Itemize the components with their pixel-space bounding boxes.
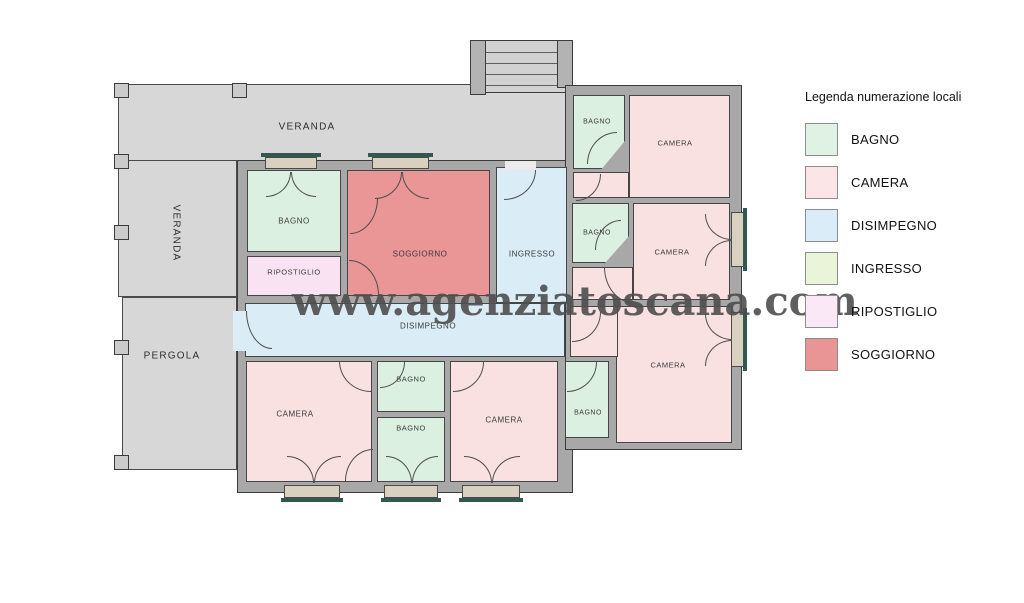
legend-swatch-bagno bbox=[805, 123, 838, 156]
window-frame-strip-3 bbox=[281, 498, 343, 502]
opening-ingresso-entry bbox=[505, 161, 536, 170]
staircase-sidewall-2 bbox=[557, 40, 573, 88]
staircase-sidewall-1 bbox=[470, 40, 486, 95]
staircase-step-3 bbox=[486, 74, 557, 75]
room-label-camera-2: CAMERA bbox=[654, 248, 689, 257]
room-label-ripostiglio: RIPOSTIGLIO bbox=[267, 268, 320, 277]
veranda-pillar-3 bbox=[114, 154, 129, 169]
room-label-bagno-m2: BAGNO bbox=[396, 424, 426, 433]
legend-label-bagno: BAGNO bbox=[851, 132, 899, 147]
legend-label-ripostiglio: RIPOSTIGLIO bbox=[851, 304, 937, 319]
legend-swatch-camera bbox=[805, 166, 838, 199]
sill-top-1 bbox=[265, 157, 317, 169]
outdoor-label-pergola-3: PERGOLA bbox=[144, 351, 201, 362]
staircase-step-1 bbox=[486, 52, 557, 53]
legend-label-disimpegno: DISIMPEGNO bbox=[851, 218, 937, 233]
room-label-bagno-br: BAGNO bbox=[574, 410, 602, 417]
sill-bottom-3 bbox=[462, 485, 520, 498]
window-frame-strip-5 bbox=[459, 498, 523, 502]
outdoor-area-veranda-top bbox=[118, 84, 568, 162]
outdoor-area-pergola bbox=[122, 297, 237, 470]
veranda-pillar-6 bbox=[114, 455, 129, 470]
room-label-camera-3: CAMERA bbox=[650, 361, 685, 370]
legend-row-ingresso: INGRESSO bbox=[805, 251, 961, 285]
window-frame-strip-6 bbox=[743, 208, 747, 271]
opening-pergola-door bbox=[233, 311, 246, 351]
staircase-step-2 bbox=[486, 63, 557, 64]
legend-items: BAGNOCAMERADISIMPEGNOINGRESSORIPOSTIGLIO… bbox=[805, 122, 961, 371]
window-frame-strip-1 bbox=[261, 153, 321, 157]
sill-top-2 bbox=[372, 157, 429, 169]
legend-row-disimpegno: DISIMPEGNO bbox=[805, 208, 961, 242]
legend-label-camera: CAMERA bbox=[851, 175, 908, 190]
legend-row-soggiorno: SOGGIORNO bbox=[805, 337, 961, 371]
room-label-bagno-1: BAGNO bbox=[278, 217, 309, 226]
veranda-pillar-4 bbox=[114, 225, 129, 240]
legend-row-camera: CAMERA bbox=[805, 165, 961, 199]
watermark-text: www.agenziatoscana.com bbox=[292, 278, 858, 325]
legend-panel: Legenda numerazione locali BAGNOCAMERADI… bbox=[805, 90, 961, 380]
room-label-ingresso: INGRESSO bbox=[509, 250, 555, 259]
window-frame-strip-2 bbox=[368, 153, 433, 157]
sill-bottom-1 bbox=[284, 485, 340, 498]
window-frame-strip-4 bbox=[381, 498, 441, 502]
veranda-pillar-5 bbox=[114, 340, 129, 355]
legend-title: Legenda numerazione locali bbox=[805, 90, 961, 104]
legend-label-ingresso: INGRESSO bbox=[851, 261, 922, 276]
legend-swatch-ripostiglio bbox=[805, 295, 838, 328]
sill-bottom-2 bbox=[384, 485, 438, 498]
legend-label-soggiorno: SOGGIORNO bbox=[851, 347, 935, 362]
legend-swatch-ingresso bbox=[805, 252, 838, 285]
room-label-camera-bc: CAMERA bbox=[485, 416, 522, 425]
floor-plan-page: BAGNORIPOSTIGLIOSOGGIORNOINGRESSOBAGNOCA… bbox=[0, 0, 1024, 603]
legend-swatch-soggiorno bbox=[805, 338, 838, 371]
legend-row-bagno: BAGNO bbox=[805, 122, 961, 156]
outdoor-label-veranda-2: VERANDA bbox=[171, 205, 182, 262]
legend-row-ripostiglio: RIPOSTIGLIO bbox=[805, 294, 961, 328]
legend-swatch-disimpegno bbox=[805, 209, 838, 242]
room-label-soggiorno: SOGGIORNO bbox=[393, 250, 448, 259]
veranda-pillar-2 bbox=[232, 83, 247, 98]
room-label-bagno-top: BAGNO bbox=[583, 119, 611, 126]
room-label-camera-1: CAMERA bbox=[657, 139, 692, 148]
veranda-pillar-1 bbox=[114, 83, 129, 98]
room-label-camera-bl: CAMERA bbox=[276, 410, 313, 419]
outdoor-label-veranda-1: VERANDA bbox=[279, 122, 336, 133]
staircase-step-4 bbox=[486, 85, 557, 86]
